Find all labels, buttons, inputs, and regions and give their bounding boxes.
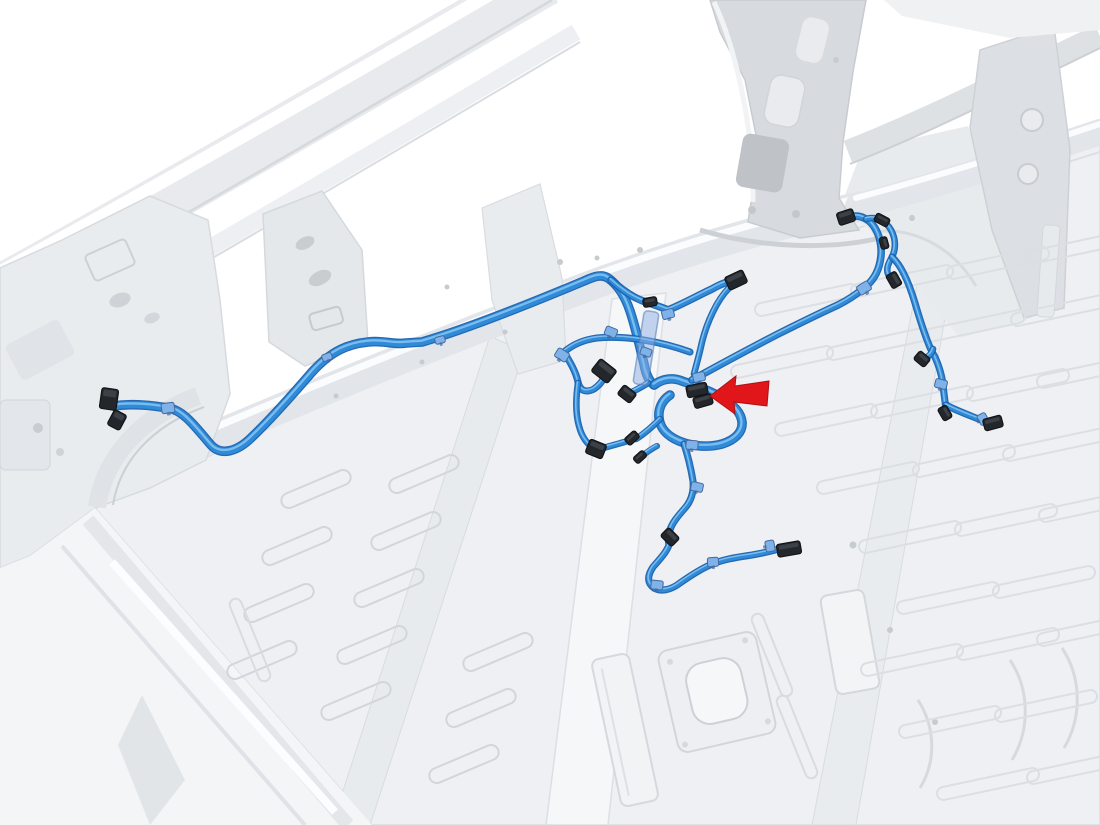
clip-stem (654, 588, 658, 592)
clip-body (686, 440, 699, 450)
harness-connector-inline-top (642, 296, 657, 307)
a-pillar-base (263, 191, 368, 366)
top-right-panel (884, 0, 1100, 38)
clip-stem (167, 412, 171, 416)
clip-body (707, 557, 719, 567)
floor-access-plate (657, 630, 778, 754)
harness-connector-left-end-a (99, 387, 119, 410)
vehicle-body-illustration (0, 0, 1100, 825)
connector-body (642, 296, 657, 307)
clip-stem (712, 565, 716, 569)
illustration-stage (0, 0, 1100, 825)
clip-stem (690, 448, 694, 452)
